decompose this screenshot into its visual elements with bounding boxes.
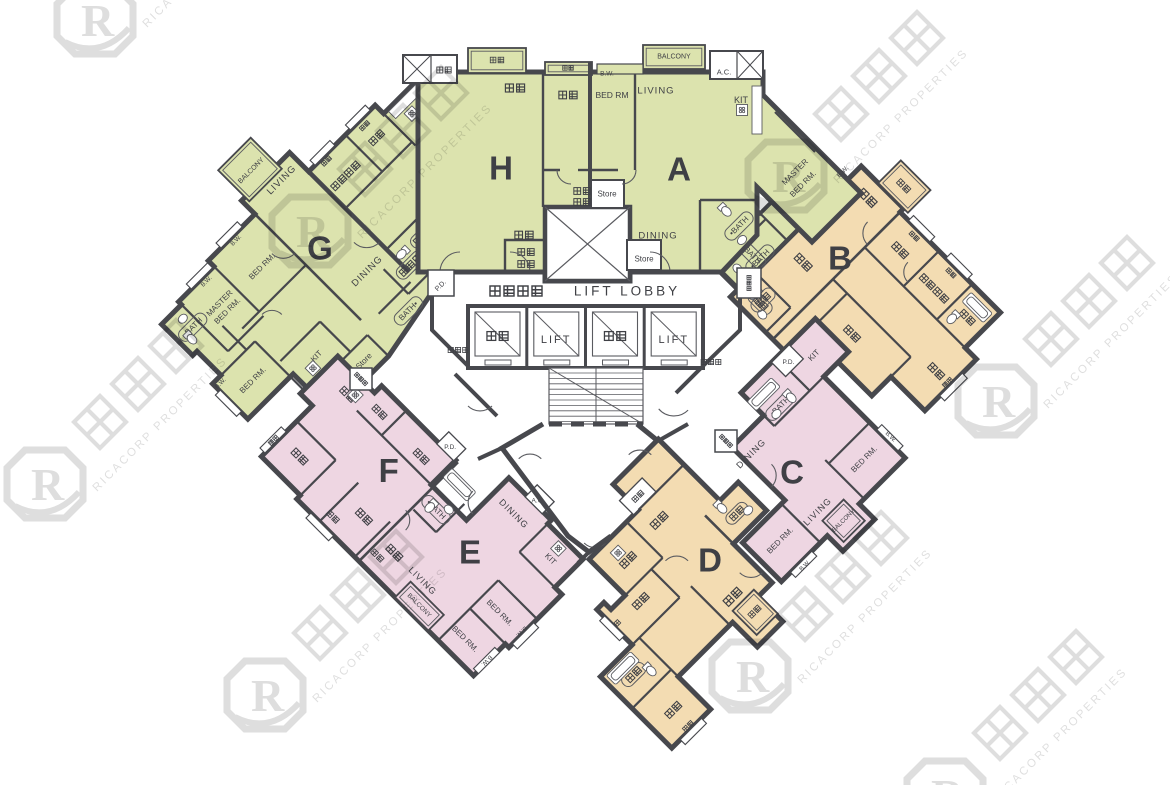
svg-text:LIFT LOBBY: LIFT LOBBY (574, 284, 680, 299)
svg-text:B: B (828, 239, 852, 276)
svg-text:F: F (379, 452, 399, 489)
svg-text:D: D (698, 542, 722, 579)
svg-text:KIT: KIT (734, 95, 749, 105)
svg-text:R: R (931, 770, 965, 785)
svg-text:R: R (982, 376, 1016, 427)
svg-text:LIFT: LIFT (658, 334, 689, 346)
svg-text:DINING: DINING (638, 231, 677, 242)
svg-text:LIFT: LIFT (541, 334, 572, 346)
svg-text:BED RM: BED RM (595, 90, 628, 100)
svg-text:BALCONY: BALCONY (657, 54, 691, 61)
svg-text:R: R (31, 459, 65, 510)
svg-text:A.C.: A.C. (717, 68, 732, 77)
svg-text:R: R (736, 651, 770, 702)
svg-text:R: R (81, 0, 115, 46)
svg-text:LIVING: LIVING (637, 86, 674, 97)
svg-text:R: R (296, 206, 330, 257)
svg-text:C: C (780, 454, 804, 491)
svg-text:R: R (251, 670, 285, 721)
svg-text:H: H (489, 150, 513, 187)
svg-text:A: A (667, 151, 691, 188)
svg-text:R: R (772, 151, 806, 202)
svg-text:E: E (459, 534, 481, 571)
svg-text:Store: Store (597, 190, 617, 199)
svg-text:P.D.: P.D. (783, 359, 795, 366)
svg-text:P.D.: P.D. (444, 444, 456, 451)
svg-text:Store: Store (634, 255, 654, 264)
svg-text:B.W.: B.W. (600, 71, 614, 78)
